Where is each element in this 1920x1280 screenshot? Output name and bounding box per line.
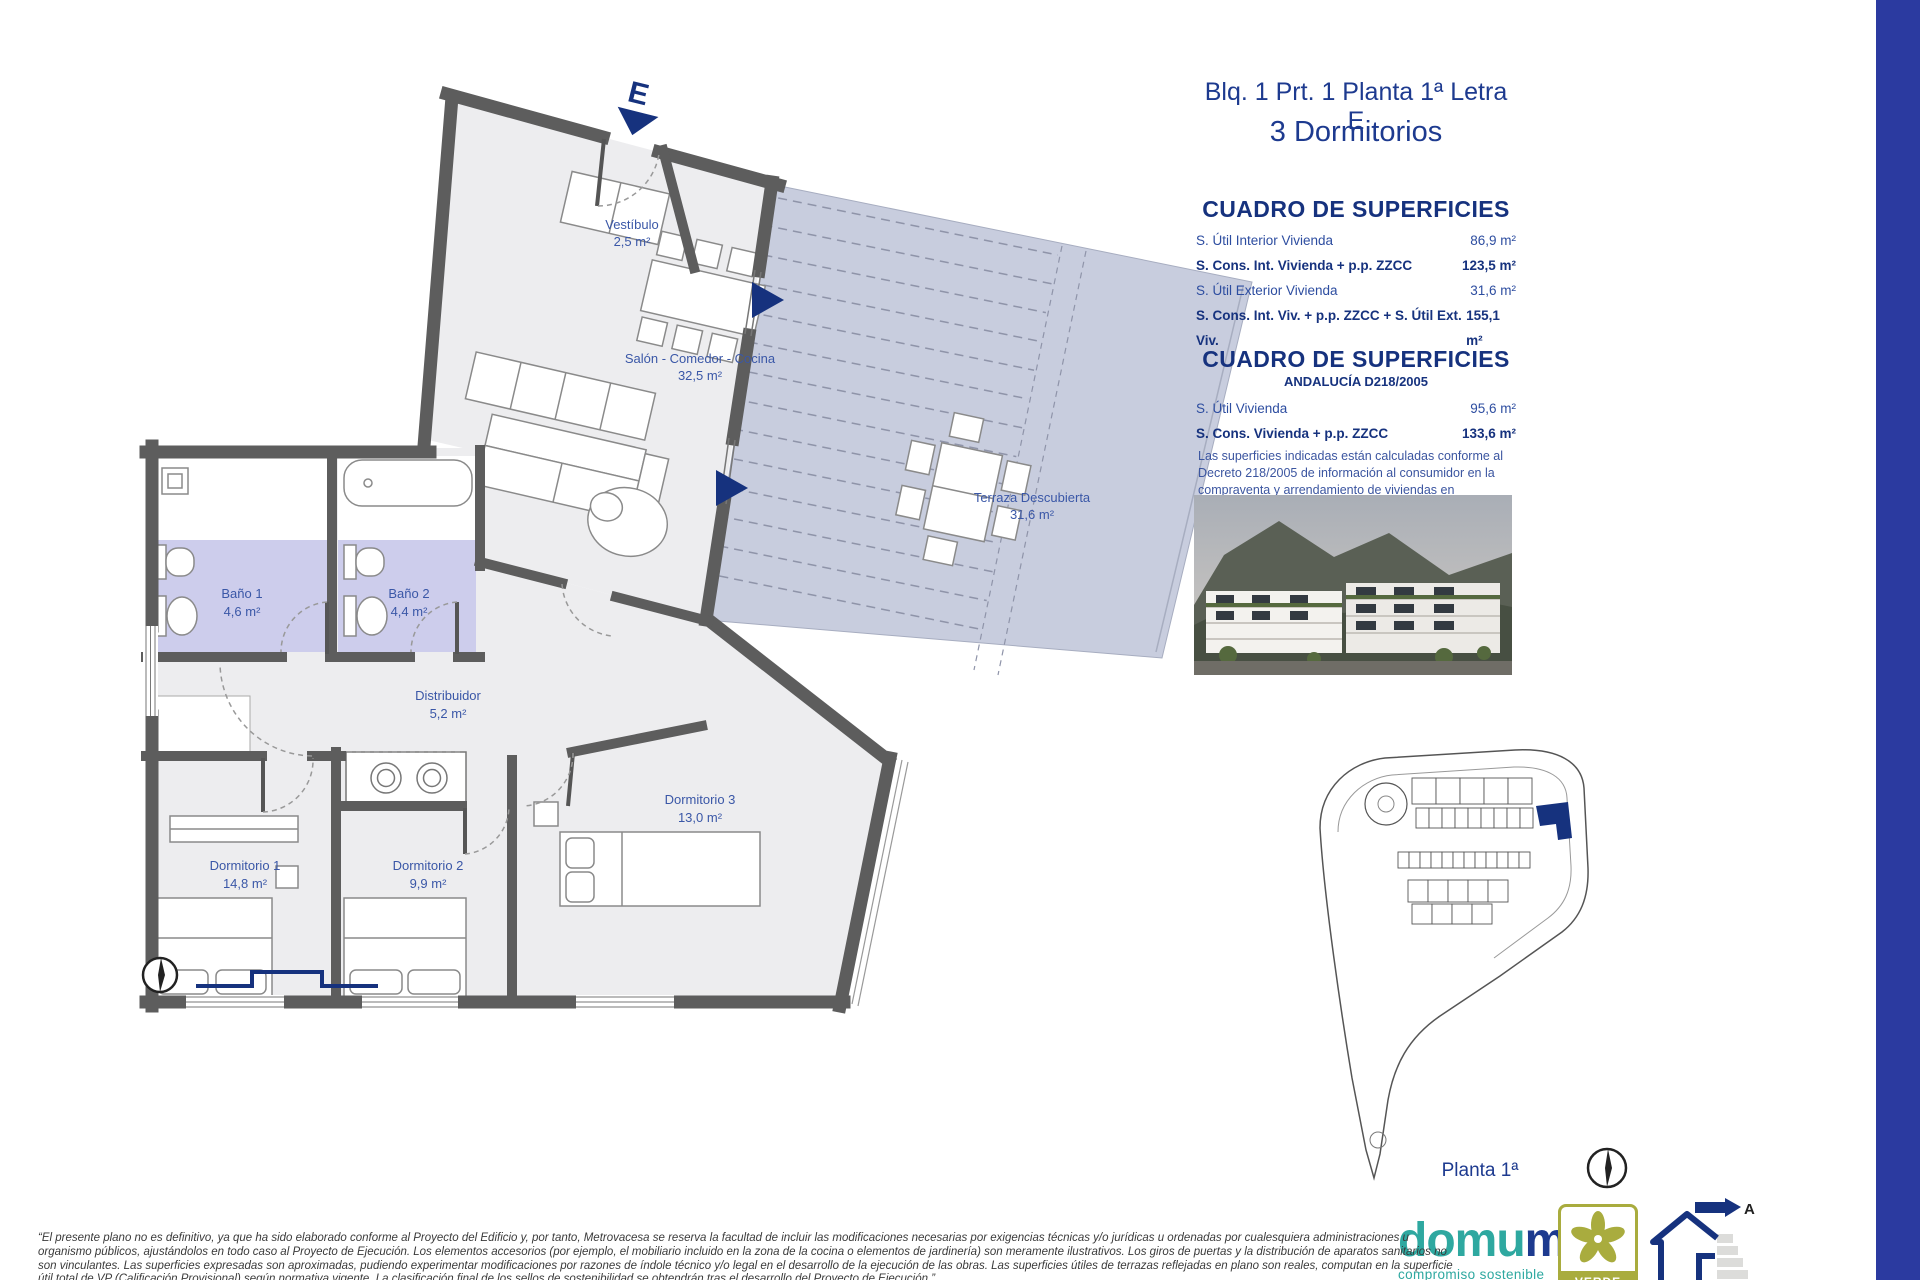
energy-letter: A (1744, 1201, 1755, 1218)
table-row: S. Cons. Vivienda + p.p. ZZCC 133,6 m² (1196, 421, 1516, 446)
energy-rating-icon: A (1645, 1196, 1755, 1280)
room-area-bano1: 4,6 m² (224, 604, 262, 619)
room-label-dormitorio2: Dormitorio 2 (393, 858, 464, 873)
verde-sustainability-badge: VERDE (1558, 1204, 1638, 1280)
row-value: 155,1 m² (1466, 303, 1516, 328)
laundry-closet (346, 752, 466, 804)
row-value: 133,6 m² (1462, 421, 1516, 446)
table-row: S. Cons. Int. Vivienda + p.p. ZZCC 123,5… (1196, 253, 1516, 278)
disclaimer-line: organismo públicos, ajustándolos en todo… (38, 1246, 1438, 1260)
leaf-pinwheel-icon (1569, 1211, 1627, 1266)
room-area-distribuidor: 5,2 m² (430, 706, 468, 721)
surfaces-heading-1: CUADRO DE SUPERFICIES (1196, 196, 1516, 223)
room-label-bano1: Baño 1 (221, 586, 262, 601)
room-area-dormitorio2: 9,9 m² (410, 876, 448, 891)
row-label: S. Útil Exterior Vivienda (1196, 278, 1338, 303)
north-compass-icon (1583, 1144, 1631, 1192)
row-label: S. Útil Interior Vivienda (1196, 228, 1333, 253)
badge-label: VERDE (1561, 1271, 1635, 1280)
room-label-terraza: Terraza Descubierta (974, 490, 1091, 505)
room-label-salon: Salón - Comedor - Cocina (625, 351, 776, 366)
surfaces-heading-2: CUADRO DE SUPERFICIES (1196, 346, 1516, 373)
row-value: 31,6 m² (1470, 278, 1516, 303)
row-value: 95,6 m² (1470, 396, 1516, 421)
room-area-dormitorio3: 13,0 m² (678, 810, 723, 825)
room-label-dormitorio1: Dormitorio 1 (210, 858, 281, 873)
surfaces-table-1: S. Útil Interior Vivienda 86,9 m² S. Con… (1196, 228, 1516, 328)
disclaimer-line: útil total de VP (Calificación Provision… (38, 1273, 1438, 1280)
room-label-dormitorio3: Dormitorio 3 (665, 792, 736, 807)
surfaces-subheading-2: ANDALUCÍA D218/2005 (1196, 374, 1516, 389)
room-label-distribuidor: Distribuidor (415, 688, 481, 703)
table-row: S. Útil Interior Vivienda 86,9 m² (1196, 228, 1516, 253)
room-area-terraza: 31,6 m² (1010, 507, 1055, 522)
page-edge-stripe (1876, 0, 1920, 1280)
disclaimer-line: son vinculantes. Las superficies expresa… (38, 1260, 1438, 1274)
row-label: S. Cons. Int. Viv. + p.p. ZZCC + S. Útil… (1196, 303, 1466, 328)
room-label-vestibulo: Vestíbulo (605, 217, 659, 232)
plan-sheet: E Vestíbulo 2,5 m² Salón - Comedor - Coc… (0, 0, 1920, 1280)
room-area-vestibulo: 2,5 m² (614, 234, 652, 249)
row-value: 86,9 m² (1470, 228, 1516, 253)
building-render-photo (1194, 495, 1512, 675)
floor-level-label: Planta 1ª (1415, 1160, 1545, 1182)
table-row: S. Útil Exterior Vivienda 31,6 m² (1196, 278, 1516, 303)
entrance-marker: E (612, 74, 667, 140)
legal-disclaimer: “El presente plano no es definitivo, ya … (38, 1232, 1438, 1280)
north-compass-icon (143, 958, 177, 992)
room-area-dormitorio1: 14,8 m² (223, 876, 268, 891)
room-label-bano2: Baño 2 (388, 586, 429, 601)
row-value: 123,5 m² (1462, 253, 1516, 278)
disclaimer-line: “El presente plano no es definitivo, ya … (38, 1232, 1438, 1246)
table-row: S. Cons. Int. Viv. + p.p. ZZCC + S. Útil… (1196, 303, 1516, 328)
room-area-salon: 32,5 m² (678, 368, 723, 383)
floor-plan-drawing: E Vestíbulo 2,5 m² Salón - Comedor - Coc… (0, 0, 1920, 1280)
entrance-arrow-icon (612, 107, 659, 140)
row-label: S. Útil Vivienda (1196, 396, 1287, 421)
row-label: S. Cons. Vivienda + p.p. ZZCC (1196, 421, 1388, 446)
table-row: S. Útil Vivienda 95,6 m² (1196, 396, 1516, 421)
surfaces-table-2: S. Útil Vivienda 95,6 m² S. Cons. Vivien… (1196, 396, 1516, 446)
room-area-bano2: 4,4 m² (391, 604, 429, 619)
entrance-letter: E (625, 76, 652, 113)
row-label: S. Cons. Int. Vivienda + p.p. ZZCC (1196, 253, 1412, 278)
sheet-subtitle: 3 Dormitorios (1196, 116, 1516, 149)
site-plan-key (1290, 748, 1610, 1184)
